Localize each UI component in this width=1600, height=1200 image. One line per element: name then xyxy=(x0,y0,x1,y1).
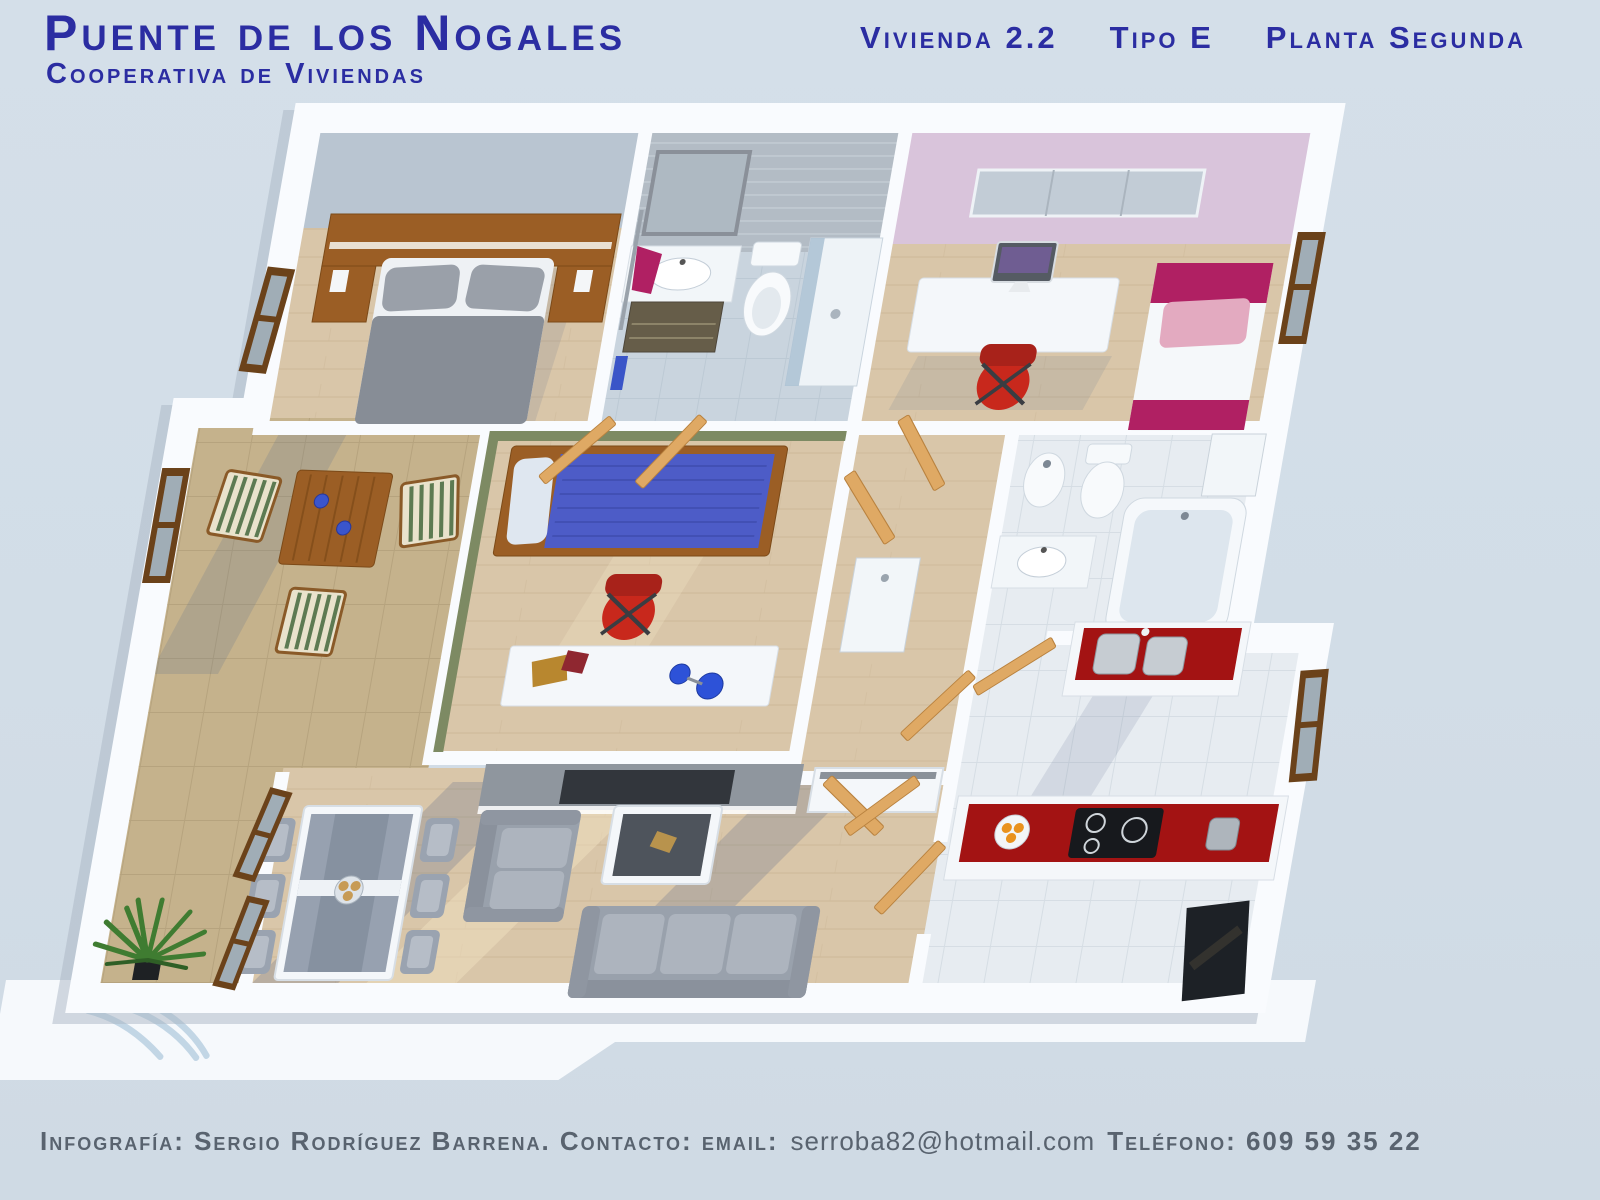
bed-head-cover xyxy=(1150,263,1273,303)
terrace-table xyxy=(278,470,393,567)
bathtub-basin xyxy=(1117,510,1235,622)
sideboard-top xyxy=(819,772,936,779)
terrace-chair xyxy=(400,475,458,547)
wall-shelf xyxy=(971,170,1205,216)
poster: Puente de los Nogales Cooperativa de Viv… xyxy=(0,0,1600,1200)
contact-email: serroba82@hotmail.com xyxy=(791,1126,1096,1157)
floorplan-render xyxy=(0,0,1600,1200)
pillow xyxy=(463,264,546,312)
pillow xyxy=(1159,298,1251,348)
bed-foot-cover xyxy=(1128,400,1249,430)
toilet-tank xyxy=(1085,444,1133,464)
pillow xyxy=(381,264,461,312)
headboard-shelf xyxy=(329,242,612,249)
loveseat xyxy=(462,810,582,922)
toilet-tank xyxy=(750,242,802,266)
contact-phone: Teléfono: 609 59 35 22 xyxy=(1107,1126,1422,1157)
bath-cabinet xyxy=(1201,434,1266,496)
cooktop xyxy=(1068,808,1165,858)
floor-mat xyxy=(1182,900,1250,1001)
kitchen-sink xyxy=(1092,634,1141,674)
mirror xyxy=(644,152,750,234)
duvet xyxy=(354,316,545,424)
kitchen-sink xyxy=(1142,637,1189,675)
coffee-maker xyxy=(1205,818,1241,850)
sofa xyxy=(567,906,821,998)
vanity-cabinet xyxy=(623,302,724,352)
tv-screen xyxy=(559,770,735,804)
credit-text: Infografía: Sergio Rodríguez Barrena. Co… xyxy=(40,1126,779,1157)
credit-line: Infografía: Sergio Rodríguez Barrena. Co… xyxy=(40,1126,1422,1157)
bedroom1-north-wall xyxy=(295,124,641,228)
